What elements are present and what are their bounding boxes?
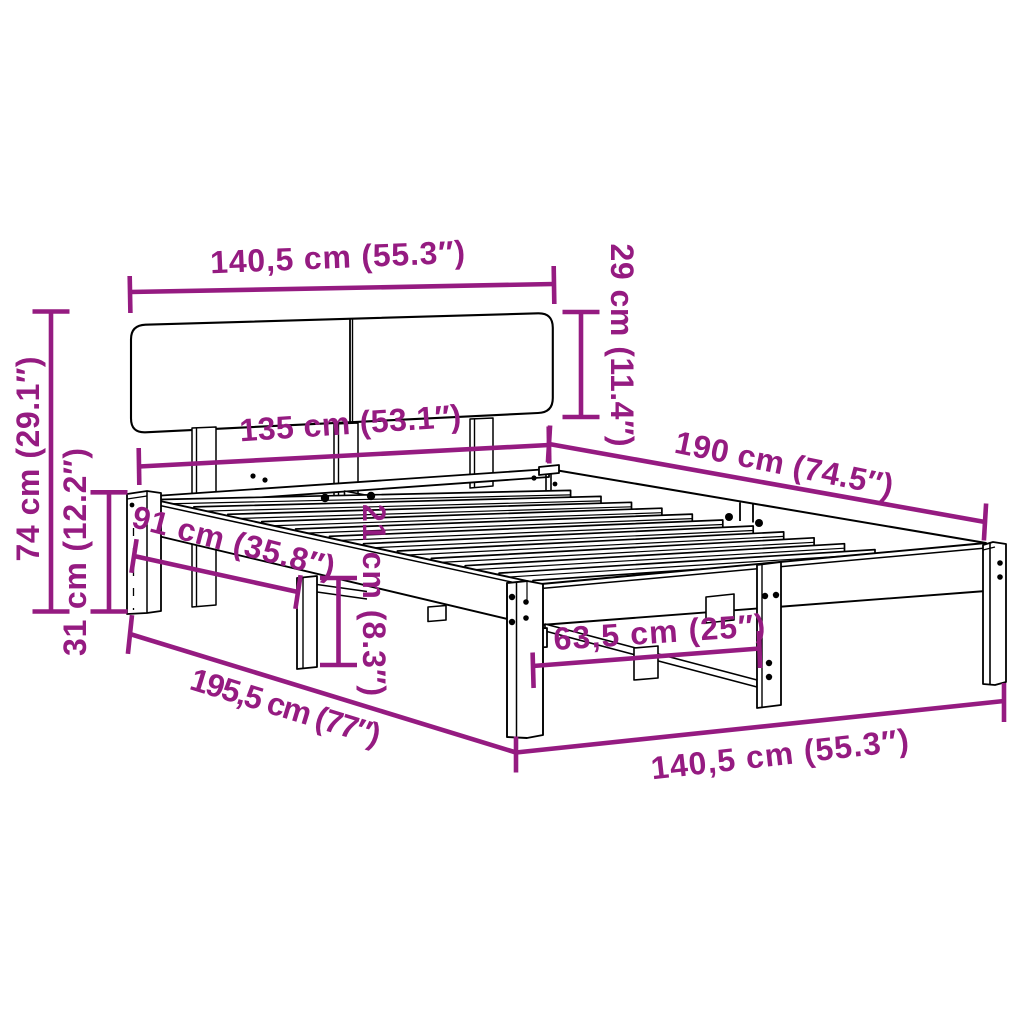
svg-text:74 cm (29.1″): 74 cm (29.1″) bbox=[10, 357, 46, 562]
svg-text:29 cm (11.4″): 29 cm (11.4″) bbox=[604, 244, 640, 447]
svg-text:31 cm (12.2″): 31 cm (12.2″) bbox=[57, 448, 93, 656]
svg-text:21 cm (8.3″): 21 cm (8.3″) bbox=[356, 504, 392, 696]
